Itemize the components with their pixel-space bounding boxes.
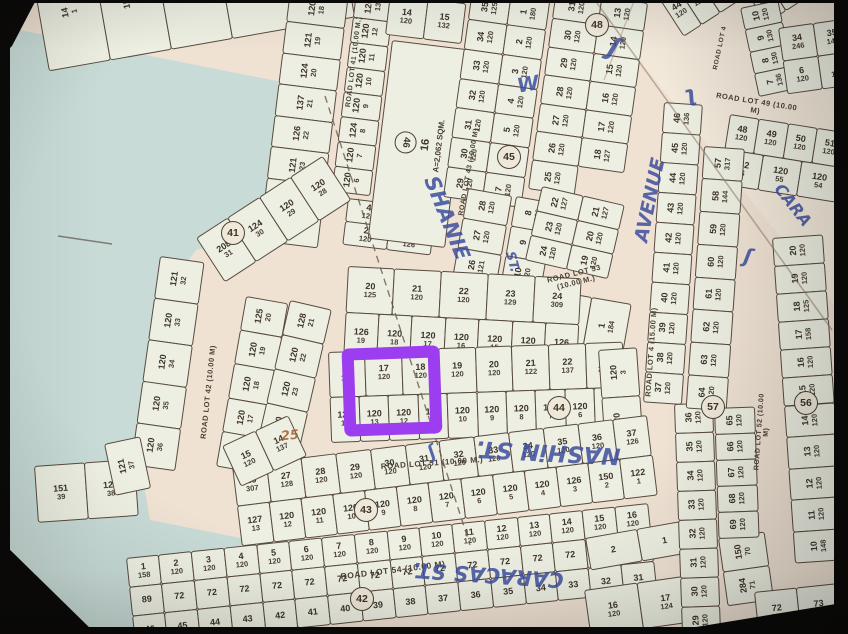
lot-cell: 15132 [422, 0, 466, 44]
lot-size: 6 [578, 411, 582, 419]
lot-cell: 33120 [677, 489, 717, 520]
lot-row: 32120 [678, 519, 717, 549]
lot-size: 125 [490, 1, 499, 14]
lot-size: 120 [485, 31, 494, 44]
lot-size: 20 [310, 68, 318, 77]
lot-size: 120 [431, 540, 444, 549]
junction-circle-45: 45 [497, 145, 521, 169]
lot-size: 54 [813, 181, 822, 190]
lot-size: 120 [714, 288, 722, 301]
lot-size: 9 [490, 414, 494, 422]
lot-row: 20120 [772, 235, 824, 266]
lot-size: 120 [736, 440, 744, 453]
lot-size: 144 [721, 190, 729, 203]
lot-size: 120 [607, 609, 620, 618]
lot-cell: 46136 [661, 101, 702, 135]
lot-size: 120 [477, 90, 486, 103]
lot-cell: 34120 [676, 460, 716, 491]
lot-cell: 12010 [447, 391, 479, 438]
lot-size: 8 [519, 413, 523, 421]
lot-number: 72 [532, 554, 543, 564]
lot-size: 120 [801, 271, 809, 284]
lot-cell: 31120 [679, 547, 719, 578]
lot-row: 12033 [148, 298, 197, 346]
lot-number: 72 [565, 551, 576, 561]
lot-size: 120 [482, 230, 492, 244]
lot-size: 120 [710, 354, 718, 367]
road-label-2: ROAD LOT 42 (10.00 M) [199, 345, 218, 440]
frame-top [0, 0, 848, 3]
lot-cell: 58144 [699, 178, 742, 215]
lot-cell: 18125 [775, 290, 828, 322]
lot-row: 60120 [695, 244, 737, 279]
lot-size: 120 [697, 469, 705, 482]
lot-size: 120 [565, 86, 574, 99]
lot-size: 120 [561, 526, 574, 535]
lot-cell: 42120 [653, 221, 694, 255]
lot-cell: 7120 [321, 533, 358, 567]
lot-number: 72 [174, 592, 185, 602]
lot-size: 32 [180, 276, 189, 285]
lot-row: 66120 [715, 433, 756, 460]
lot-number: 36 [470, 590, 481, 600]
lot-size: 8 [413, 504, 418, 512]
lot-cell: 29120 [335, 448, 376, 493]
lot-cell: 4120 [223, 544, 260, 578]
lot-size: 126 [626, 437, 639, 446]
lot-cell: 32120 [678, 518, 718, 549]
lot-size: 13 [251, 524, 260, 532]
lot-size: 120 [398, 544, 411, 553]
lot-size: 18 [318, 5, 326, 14]
lot-cell: 22137 [548, 343, 587, 390]
lot-number: 43 [242, 614, 253, 624]
lot-size: 120 [813, 445, 821, 458]
lot-row: 59120 [697, 211, 739, 246]
lot-size: 120 [451, 371, 464, 379]
lot-number: 7 [494, 186, 504, 192]
lot-number: 33 [568, 580, 579, 590]
lot-row: 63120 [688, 342, 730, 377]
lot-size: 120 [554, 222, 564, 236]
lot-cell: 37 [425, 582, 462, 616]
lot-size: 2 [604, 481, 609, 489]
lot-number: 72 [207, 588, 218, 598]
lot-cell: 12120 [484, 516, 521, 550]
lot-size: 22 [302, 130, 310, 139]
lot-size: 70 [744, 546, 753, 555]
lot-size: 120 [561, 115, 570, 128]
lot-cell: 21122 [511, 344, 550, 391]
lot-size: 34 [168, 359, 177, 368]
lot-cell: 12033 [148, 297, 199, 346]
lot-cell: 72 [259, 570, 296, 604]
lot-cell: 3120 [191, 547, 228, 581]
lot-size: 120 [698, 498, 706, 511]
lot-size: 23 [291, 387, 300, 397]
lot-size: 12 [371, 28, 379, 37]
junction-circle-43: 43 [354, 498, 378, 522]
lot-size: 120 [607, 121, 616, 134]
lot-number: 41 [307, 607, 318, 617]
lot-size: 180 [528, 7, 537, 20]
lot-size: 120 [815, 476, 823, 489]
lot-size: 130 [766, 29, 776, 43]
lot-size: 9 [362, 104, 370, 109]
lot-cell: 9120 [386, 527, 423, 561]
lot-size: 11 [315, 516, 324, 524]
junction-circle-44: 44 [547, 396, 571, 420]
lot-size: 120 [670, 292, 678, 305]
lot-size: 120 [548, 247, 558, 261]
lot-number: 72 [239, 585, 250, 595]
lot-cell: 1209 [476, 390, 508, 437]
lot-size: 120 [796, 74, 809, 83]
lot-row: 12034 [142, 339, 191, 387]
lot-cell: 21120 [392, 268, 442, 317]
lot-row: 62120 [690, 309, 732, 344]
block-1415: 1412015132 [385, 0, 465, 43]
lot-size: 246 [792, 42, 805, 51]
lot-cell: 12034 [142, 339, 193, 388]
lot-size: 120 [399, 16, 412, 25]
big-lot-number: 16 [419, 138, 431, 151]
lot-row: 46136 [662, 102, 702, 135]
lot-size: 120 [817, 508, 825, 521]
lot-size: 120 [481, 60, 490, 73]
lot-size: 37 [127, 460, 136, 470]
lot-size: 36 [156, 442, 165, 451]
lot-cell: 6120 [782, 55, 822, 94]
junction-circle-46: 46 [392, 130, 417, 155]
lot-size: 120 [594, 523, 607, 532]
lot-row: 41120 [651, 252, 691, 285]
lot-size: 30 [254, 228, 265, 239]
lot-size: 10 [365, 77, 373, 86]
lot-size: 120 [719, 223, 727, 236]
lot-cell: 19120 [773, 262, 826, 294]
lot-cell: 17158 [777, 318, 830, 350]
lot-size: 120 [569, 58, 578, 71]
lot-size: 29 [286, 207, 297, 218]
lot-row: 35120 [675, 432, 714, 462]
lot-size: 120 [524, 36, 533, 49]
lot-size: 136 [775, 73, 785, 87]
lot-row: 1412015132 [385, 0, 465, 43]
lot-size: 1 [636, 477, 641, 485]
lot-number: 72 [272, 581, 283, 591]
lot-size: 120 [203, 564, 216, 573]
lot-number: 39 [372, 600, 383, 610]
lot-size: 120 [315, 475, 328, 484]
lot-row: 58144 [699, 179, 741, 214]
lot-size: 120 [573, 30, 582, 43]
lot-size: 17 [246, 414, 255, 424]
junction-circle-48: 48 [585, 13, 609, 37]
lot-size: 120 [763, 138, 777, 147]
lot-size: 120 [699, 527, 707, 540]
lot-size: 120 [674, 232, 682, 245]
highlight-box[interactable] [341, 345, 442, 436]
lot-row: 61120 [693, 277, 735, 312]
lot-size: 35 [162, 401, 171, 410]
lot-cell: 8120 [353, 530, 390, 564]
lot-size: 137 [561, 367, 574, 375]
handwritten-annotation-2: W [515, 70, 541, 97]
lot-number: 37 [438, 593, 449, 603]
lot-cell: 23129 [485, 273, 535, 322]
lot-row: 68120 [717, 485, 758, 512]
lot-size: 8 [359, 129, 367, 134]
lot-size: 120 [807, 355, 815, 368]
lot-row: 12120 [788, 466, 840, 501]
big-lot-area: A=2,062 SQM. [431, 119, 445, 173]
lot-size: 120 [366, 547, 379, 556]
lot-size: 120 [799, 243, 807, 256]
lot-size: 120 [463, 537, 476, 546]
lot-cell: 69120 [717, 510, 759, 538]
lot-size: 13 [374, 3, 382, 12]
lot-number: 1 [661, 535, 668, 545]
lot-size: 120 [529, 530, 542, 539]
lot-cell: 35120 [674, 431, 714, 462]
lot-size: 127 [559, 197, 569, 211]
lot-size: 120 [761, 7, 771, 21]
lot-size: 125 [803, 299, 811, 312]
lot-cell: 12035 [136, 380, 187, 429]
junction-circle-56: 56 [794, 391, 818, 415]
lot-cell: 14120 [385, 0, 429, 39]
lot-cell: 66120 [714, 432, 756, 460]
lot-cell: 20125 [345, 265, 395, 314]
lot-size: 120 [664, 381, 672, 394]
lot-size: 127 [603, 149, 612, 162]
lot-size: 71 [749, 580, 758, 589]
lot-size: 33 [174, 317, 183, 326]
lot-size: 120 [676, 202, 684, 215]
plat-map-photo: 1411591168211411111201812119124201372112… [0, 0, 848, 634]
lot-cell: 57317 [701, 145, 744, 182]
lot-size: 120 [553, 171, 562, 184]
lot-size: 120 [696, 440, 704, 453]
lot-number: 44 [210, 617, 221, 627]
lot-size: 120 [496, 533, 509, 542]
lot-cell: 1203 [597, 347, 639, 399]
lot-number: 38 [405, 597, 416, 607]
lot-size: 120 [301, 554, 314, 563]
lot-size: 148 [820, 539, 828, 552]
lot-size: 12 [283, 520, 292, 528]
col-6569: 6512066120671206812069120 [714, 407, 759, 538]
lot-size: 120 [666, 352, 674, 365]
lot-size: 120 [738, 492, 746, 505]
lot-number: 72 [304, 578, 315, 588]
lot-size: 158 [805, 327, 813, 340]
junction-circle-41: 41 [221, 221, 245, 245]
lot-number: 2 [610, 544, 617, 554]
lot-cell: 11120 [451, 520, 488, 554]
lot-size: 120 [512, 125, 521, 138]
lot-size: 10 [458, 415, 467, 423]
col-3629: 3612035120341203312032120311203012029120 [674, 403, 720, 634]
handwritten-annotation-7: 25 [280, 428, 300, 445]
lot-size: 120 [487, 201, 497, 215]
lot-size: 120 [668, 322, 676, 335]
lot-cell: 16120 [779, 346, 832, 378]
lot-cell: 1158 [125, 554, 162, 588]
lot-size: 120 [717, 256, 725, 269]
junction-circle-42: 42 [350, 587, 374, 611]
lot-cell: 5120 [256, 540, 293, 574]
lot-size: 120 [268, 557, 281, 566]
lot-size: 120 [735, 414, 743, 427]
lot-cell: 13120 [516, 513, 553, 547]
lot-size: 128 [280, 479, 293, 488]
lot-row: 17158 [778, 318, 830, 349]
lot-size: 19 [356, 336, 365, 344]
lot-number: 89 [141, 595, 152, 605]
lot-size: 28 [317, 187, 328, 198]
lot-size: 120 [557, 143, 566, 156]
lot-size: 20 [264, 313, 273, 323]
lot-size: 184 [607, 320, 617, 334]
lot-row: 18125 [776, 290, 828, 321]
lot-size: 120 [410, 293, 423, 301]
lot-size: 5 [509, 493, 514, 501]
frame-left [0, 0, 10, 634]
lot-cell: 62120 [690, 309, 733, 346]
lot-row: 12132 [154, 256, 203, 304]
lot-cell: 72 [226, 573, 263, 607]
lot-row: 33120 [677, 490, 716, 520]
lot-size: 120 [695, 411, 703, 424]
lot-row: 12035 [137, 381, 186, 429]
frame-right [834, 0, 848, 634]
lot-cell: 22120 [439, 270, 489, 319]
lot-cell: 60120 [694, 243, 737, 280]
lot-size: 120 [626, 520, 639, 529]
lot-cell: 1221 [619, 454, 657, 499]
lot-size: 120 [611, 93, 620, 106]
lot-row: 30120 [680, 577, 719, 607]
lot-size: 120 [623, 8, 632, 21]
lot-size: 3 [572, 485, 577, 493]
lot-size: 120 [349, 471, 362, 480]
lot-size: 120 [333, 550, 346, 559]
lot-size: 120 [681, 142, 689, 155]
lot-size: 120 [235, 561, 248, 570]
lot-size: 125 [363, 291, 376, 299]
lot-size: 120 [457, 296, 470, 304]
lot-number: 42 [275, 611, 286, 621]
lot-size: 120 [737, 466, 745, 479]
lot-size: 18 [390, 338, 399, 346]
lot-size: 3 [620, 370, 628, 375]
lot-size: 120 [615, 64, 624, 77]
lot-cell: 41120 [651, 251, 692, 285]
lot-size: 120 [577, 1, 586, 14]
lot-size: 129 [504, 298, 517, 306]
lot-size: 120 [700, 556, 708, 569]
lot-size: 120 [811, 413, 819, 426]
junction-circle-57: 57 [701, 395, 725, 419]
lot-size: 120 [672, 262, 680, 275]
lot-size: 120 [712, 321, 720, 334]
lot-cell: 14120 [549, 510, 586, 544]
lot-size: 122 [525, 368, 538, 376]
lot-cell: 38 [392, 585, 429, 619]
lot-row: 69120 [718, 511, 759, 538]
lot-size: 120 [701, 585, 709, 598]
lot-number: 40 [340, 604, 351, 614]
lot-size: 9 [381, 508, 386, 516]
lot-size: 130 [770, 51, 780, 65]
lot-number: 32 [600, 576, 611, 586]
lot-size: 120 [734, 133, 748, 142]
lot-cell: 67120 [715, 458, 757, 486]
lot-size: 19 [314, 36, 322, 45]
lot-size: 120 [793, 143, 807, 152]
road-label-8: ROAD LOT 52 (10.00 M) [753, 389, 773, 475]
lot-cell: 19120 [438, 346, 477, 393]
lot-cell: 13120 [786, 433, 839, 469]
lot-row: 57317 [702, 146, 744, 181]
lot-size: 1 [71, 8, 79, 13]
lot-cell: 20120 [474, 345, 513, 392]
lot-size: 120 [170, 568, 183, 577]
lot-cell: 6120 [288, 537, 325, 571]
lot-cell: 2120 [158, 551, 195, 585]
lot-size: 6 [353, 178, 361, 183]
lot-cell: 41 [294, 595, 331, 629]
lot-size: 124 [660, 602, 673, 611]
lot-size: 121 [477, 260, 487, 274]
lot-cell: 30120 [680, 576, 720, 607]
lot-size: 7 [356, 154, 364, 159]
lot-cell: 72 [291, 566, 328, 600]
lot-size: 120 [488, 369, 501, 377]
lot-size: 21 [307, 318, 316, 328]
lot-size: 22 [299, 352, 308, 362]
lot-cell: 12132 [154, 255, 205, 304]
lot-size: 39 [57, 493, 66, 501]
lot-size: 132 [437, 21, 450, 30]
lot-size: 127 [600, 207, 610, 221]
lot-size: 317 [724, 158, 732, 171]
lot-size: 120 [679, 172, 687, 185]
lot-cell: 15139 [33, 462, 88, 522]
handwritten-annotation-10: ʃ [742, 243, 754, 268]
lot-cell: 20120 [771, 234, 824, 266]
lot-row: 34120 [676, 461, 715, 491]
lot-size: 11 [368, 53, 376, 62]
lot-row: 67120 [716, 459, 757, 486]
lot-size: 309 [550, 300, 563, 308]
lot-size: 6 [477, 497, 482, 505]
lot-size: 4 [541, 489, 546, 497]
lot-size: 19 [258, 347, 267, 357]
lot-size: 21 [306, 99, 314, 108]
lot-cell: 68120 [716, 484, 758, 512]
lot-cell: 61120 [692, 276, 735, 313]
lot-row: 1203 [598, 347, 639, 398]
lot-size: 18 [252, 380, 261, 390]
lot-size: 31 [223, 248, 234, 259]
lot-row: 16120 [780, 346, 832, 377]
lot-size: 158 [138, 571, 151, 580]
lot-cell: 63120 [687, 341, 730, 378]
lot-size: 136 [683, 112, 691, 125]
